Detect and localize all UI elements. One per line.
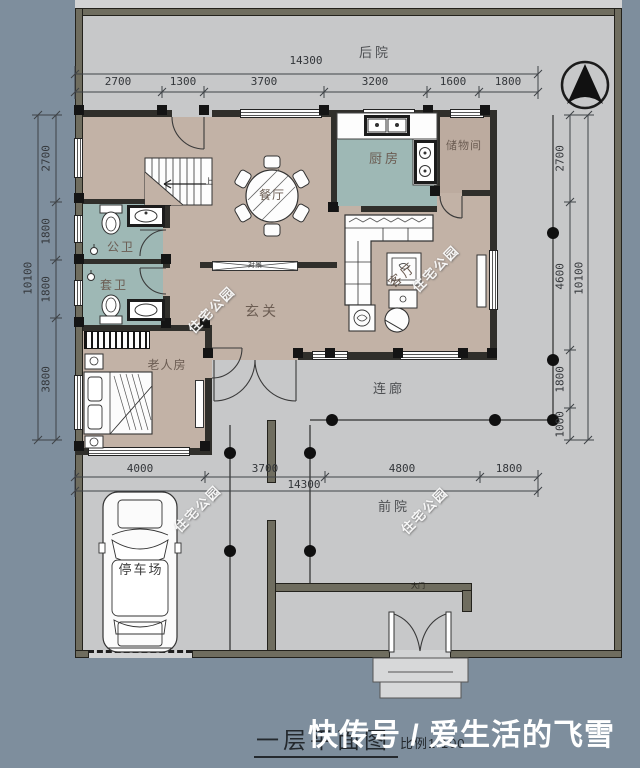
dim-top-seg: 3200 <box>353 76 397 89</box>
overlay-watermark-text: 快传号 / 爱生活的飞雪 <box>308 719 615 754</box>
dim-top-seg: 1600 <box>431 76 475 89</box>
dim-bottom-seg: 4000 <box>118 463 162 476</box>
dim-bottom-seg: 3700 <box>243 463 287 476</box>
plant-side-table <box>349 305 375 331</box>
backyard-label: 后院 <box>345 46 405 61</box>
dim-left-seg: 3800 <box>41 357 54 401</box>
main-gate-label: 大门 <box>403 583 433 591</box>
kitchen-sink <box>364 115 410 136</box>
dim-top-seg: 3700 <box>242 76 286 89</box>
gate-doors <box>389 612 451 652</box>
dim-bottom-seg: 4800 <box>380 463 424 476</box>
dim-right-seg: 1800 <box>555 357 568 401</box>
living-tv <box>477 255 486 307</box>
dim-left-seg: 2700 <box>41 136 54 180</box>
stairs-up-label: 上 <box>203 177 215 186</box>
dim-right-seg: 4600 <box>555 254 568 298</box>
dim-right-seg: 2700 <box>555 136 568 180</box>
dim-bottom-total: 14300 <box>281 479 327 492</box>
title-underline <box>254 756 398 758</box>
dim-bottom-seg: 1800 <box>487 463 531 476</box>
dining-room-label: 餐厅 <box>242 189 302 203</box>
dim-top-seg: 1800 <box>486 76 530 89</box>
lounge-chair <box>381 304 414 337</box>
public-bathroom-label: 公卫 <box>91 241 151 255</box>
entry-steps <box>373 658 468 698</box>
parking-label: 停车场 <box>111 563 171 578</box>
dim-left-total: 10100 <box>23 256 36 300</box>
storage-room-label: 储物间 <box>434 140 494 153</box>
stairs <box>145 158 212 205</box>
kitchen-counter <box>337 113 437 185</box>
entry-hall-label: 玄关 <box>232 303 292 319</box>
plan-linework <box>0 0 640 768</box>
floor-plan-canvas: 后院 前院 连廊 停车场 玄关 餐厅 厨房 储物间 客厅 公卫 套卫 老人房 对… <box>0 0 640 768</box>
elder-bedroom-label: 老人房 <box>137 359 197 373</box>
ensuite-bathroom-label: 套卫 <box>84 279 144 293</box>
dim-top-seg: 2700 <box>96 76 140 89</box>
dim-top-total: 14300 <box>283 55 329 68</box>
north-arrow-icon <box>562 62 608 108</box>
dim-top-seg: 1300 <box>161 76 205 89</box>
feature-cabinet-label: 对景 <box>240 262 270 270</box>
dim-left-seg: 1800 <box>41 267 54 311</box>
dim-right-total: 10100 <box>574 256 587 300</box>
dim-left-seg: 1800 <box>41 209 54 253</box>
corridor-label: 连廊 <box>359 382 419 397</box>
dim-right-seg: 1000 <box>555 402 568 446</box>
kitchen-label: 厨房 <box>355 152 415 167</box>
